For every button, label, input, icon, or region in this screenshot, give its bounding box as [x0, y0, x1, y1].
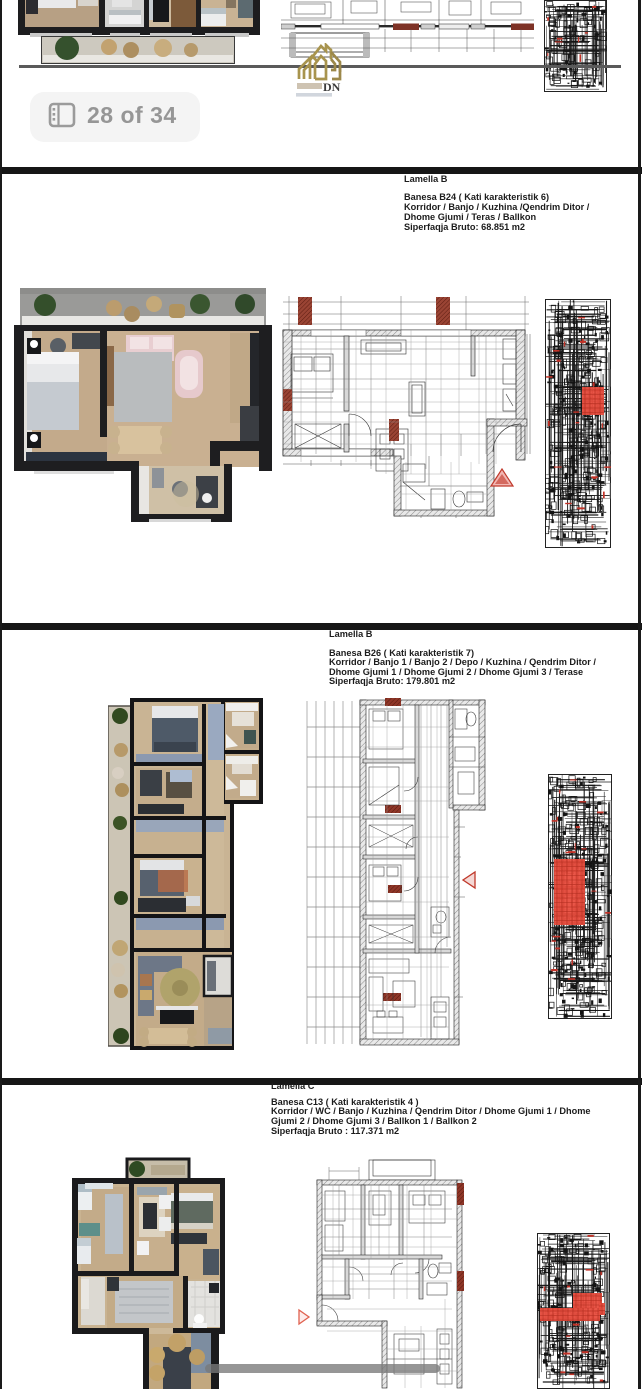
svg-text:DN: DN — [323, 80, 341, 94]
